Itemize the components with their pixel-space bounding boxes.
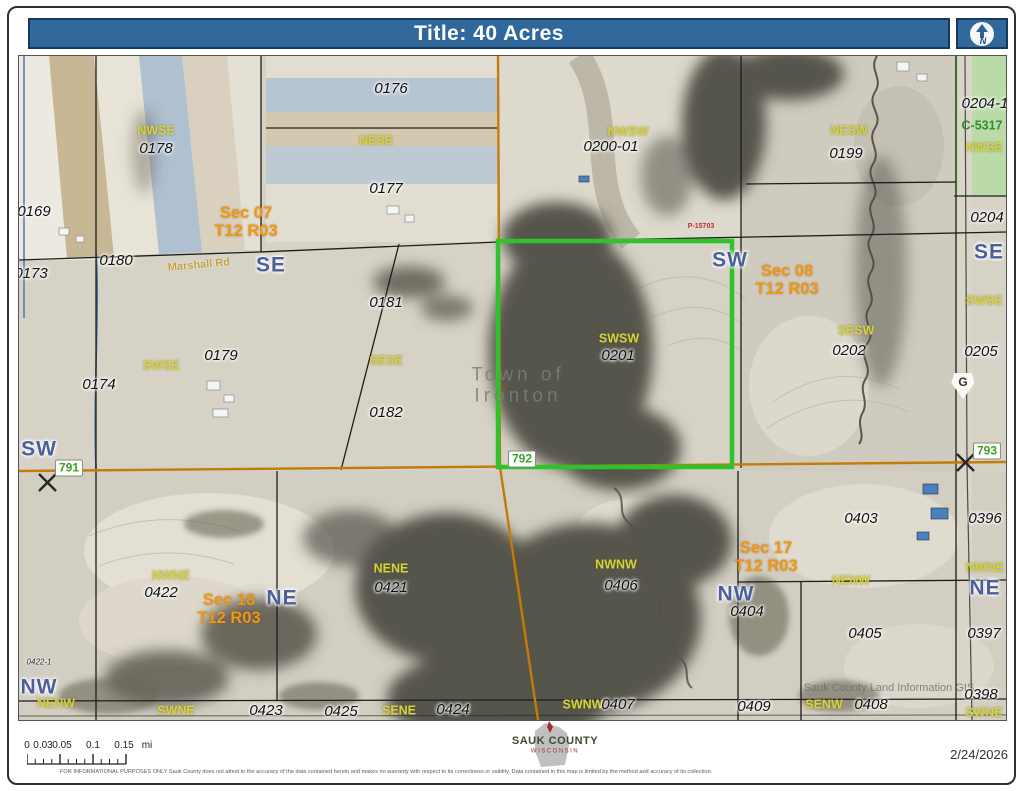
highway-badge: 793 — [973, 443, 1001, 460]
map-viewport[interactable]: NWSE NESE NWSW NESW — [18, 55, 1007, 721]
scale-label: 0.05 — [52, 740, 71, 751]
north-arrow-button[interactable]: N — [956, 18, 1008, 49]
north-arrow-icon: N — [969, 21, 995, 47]
highway-badge: 791 — [55, 460, 83, 477]
scale-label: 0 — [24, 740, 30, 751]
scale-bar: 0 0.03 0.05 0.1 0.15 mi — [27, 740, 197, 768]
scale-ruler-icon — [27, 752, 157, 766]
svg-text:N: N — [980, 36, 987, 46]
page: Title: 40 Acres N — [0, 0, 1023, 791]
scale-label: 0.03 — [33, 740, 52, 751]
map-title: Title: 40 Acres — [414, 22, 564, 46]
highway-badge: 792 — [508, 451, 536, 468]
county-logo: SAUK COUNTY WISCONSIN — [495, 719, 615, 771]
aerial-imagery — [19, 56, 1006, 720]
disclaimer-text: FOR INFORMATIONAL PURPOSES ONLY Sauk Cou… — [60, 768, 712, 774]
title-bar: Title: 40 Acres — [28, 18, 950, 49]
scale-label: mi — [142, 740, 153, 751]
scale-label: 0.1 — [86, 740, 100, 751]
logo-text: SAUK COUNTY WISCONSIN — [495, 735, 615, 756]
scale-label: 0.15 — [114, 740, 133, 751]
map-date: 2/24/2026 — [930, 747, 1008, 762]
logo-name: SAUK COUNTY — [495, 735, 615, 747]
logo-state: WISCONSIN — [510, 747, 600, 754]
